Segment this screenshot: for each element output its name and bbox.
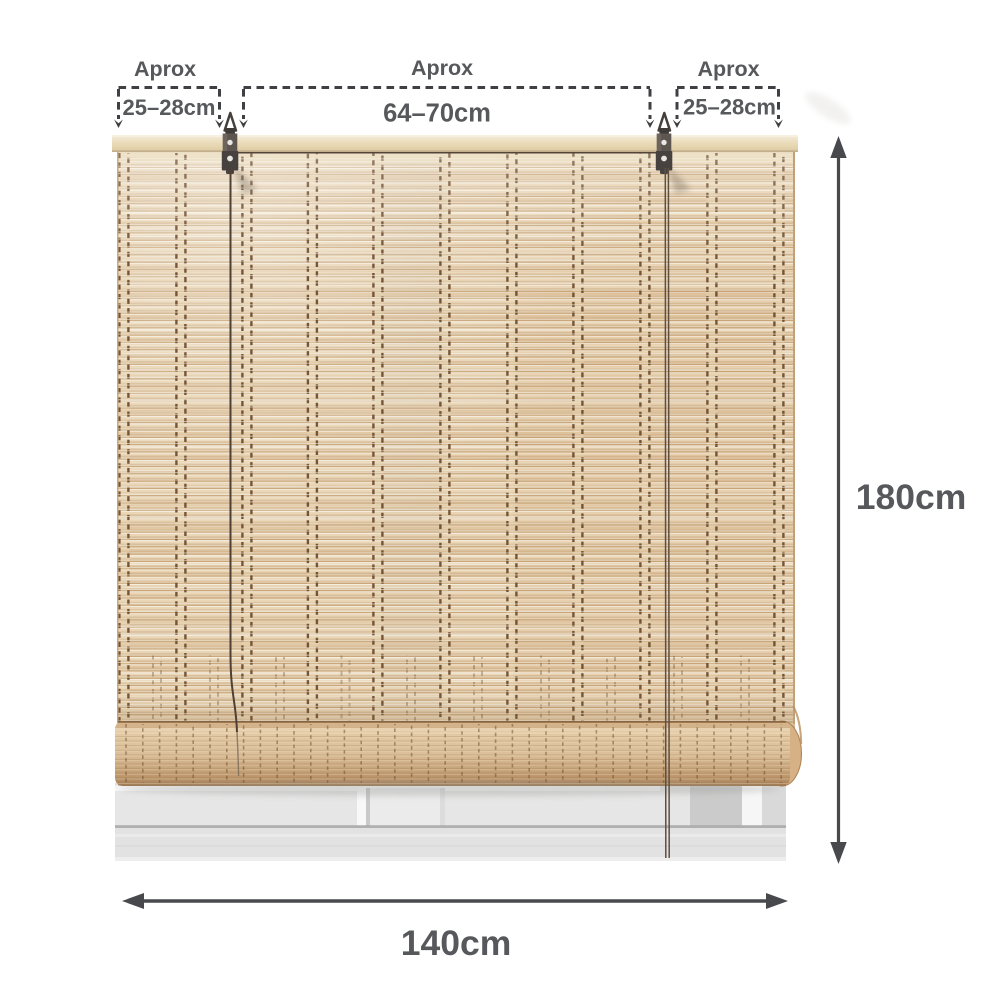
svg-text:180cm: 180cm <box>856 477 967 517</box>
svg-text:25–28cm: 25–28cm <box>123 95 216 120</box>
svg-text:Aprox: Aprox <box>134 57 196 81</box>
svg-text:25–28cm: 25–28cm <box>683 95 776 120</box>
svg-text:140cm: 140cm <box>401 923 512 963</box>
svg-text:Aprox: Aprox <box>697 57 759 81</box>
svg-text:Aprox: Aprox <box>411 56 473 80</box>
svg-text:64–70cm: 64–70cm <box>383 100 491 128</box>
